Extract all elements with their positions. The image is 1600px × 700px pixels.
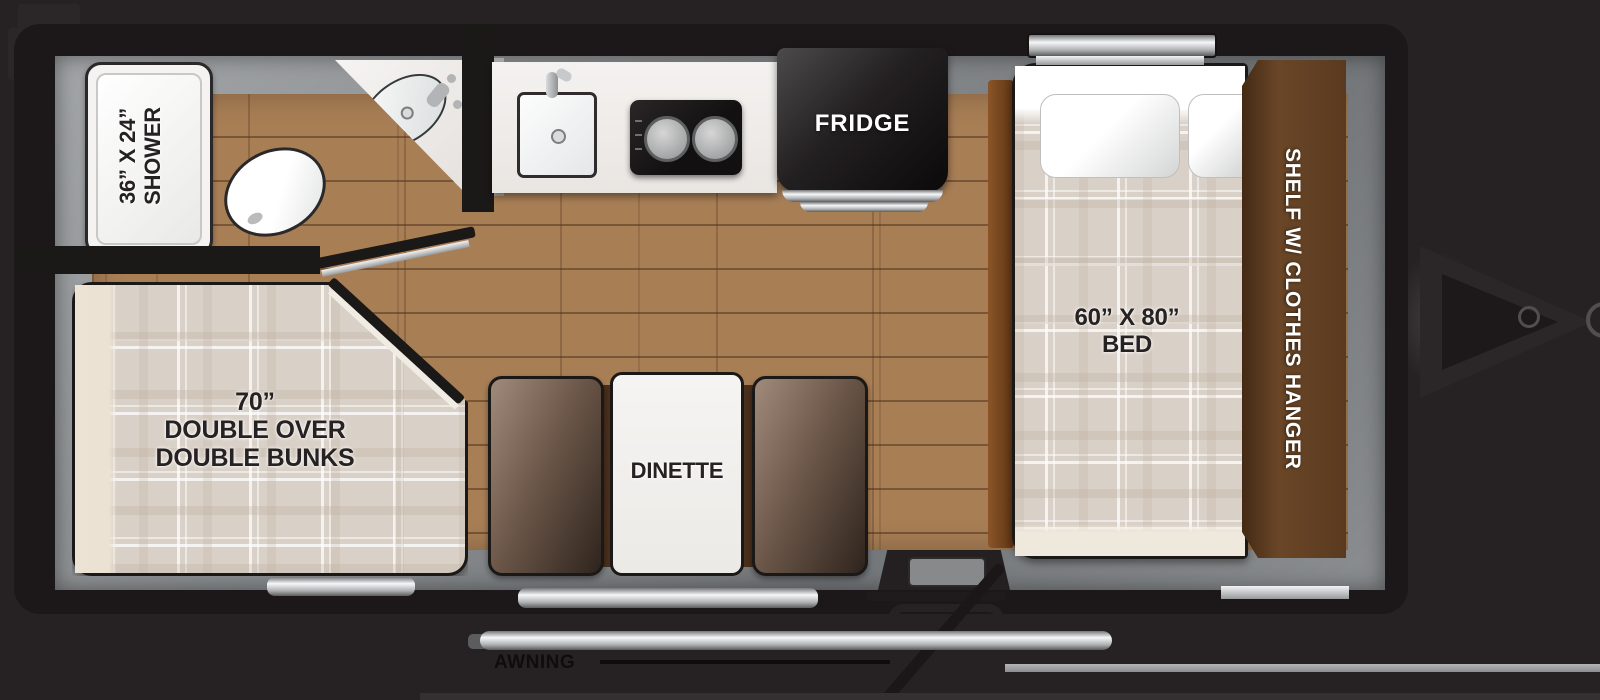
window-sill [1036,56,1204,65]
toilet-drain-icon [246,210,265,226]
shower-label: 36” X 24” SHOWER [116,66,176,246]
awning-extent-line [600,660,890,664]
awning-label: AWNING [494,652,575,674]
shower-size-text: 36” X 24” [116,66,141,246]
window [1221,586,1349,599]
bed-headboard [988,80,1014,548]
coupler-icon [1586,302,1600,338]
dinette-bench-right [752,376,868,576]
shower-text: SHOWER [141,66,166,246]
bed-size-text: 60” X 80” [1032,305,1222,332]
stove [630,100,742,175]
shelf-clothes-hanger: SHELF W/ CLOTHES HANGER [1242,60,1346,558]
burner-icon [692,116,738,162]
faucet-handle-icon [453,100,462,109]
fridge: FRIDGE [777,48,948,192]
window [1027,33,1217,58]
stove-knob-icon [635,120,642,122]
awning-bar [480,631,1112,650]
entry-door-panel [908,557,986,587]
bunk-size-text: 70” [115,388,395,416]
bed-label: 60” X 80” BED [1032,305,1222,359]
bunk-text: DOUBLE OVER [115,416,395,444]
fridge-vent-trim [782,190,943,202]
burner-icon [644,116,690,162]
wall-bath-kitchen [462,24,494,212]
window [267,577,415,596]
wall-bath-bunk [14,246,320,274]
bunk-label: 70” DOUBLE OVER DOUBLE BUNKS [115,388,395,472]
fridge-label: FRIDGE [777,110,948,138]
safety-chain-ring-icon [1518,306,1540,328]
bed-sheet-foot [1015,524,1245,556]
bunk-sheet-edge [75,285,117,573]
bunk-text: DOUBLE BUNKS [115,444,395,472]
kitchen-sink-icon [517,92,597,178]
dinette-table: DINETTE [610,372,744,576]
pillow [1040,94,1180,178]
shelf-label: SHELF W/ CLOTHES HANGER [1280,60,1304,558]
floorplan-canvas: 36” X 24” SHOWER FRIDGE [0,0,1600,700]
bottom-shadow-band [420,693,1600,700]
bed-text: BED [1032,332,1222,359]
stove-knob-icon [635,148,642,150]
window [518,588,818,608]
dinette-label: DINETTE [593,459,761,484]
faucet-handle-icon [447,74,456,83]
dinette-bench-left [488,376,604,576]
stove-knob-icon [635,134,642,136]
pillow [1188,94,1244,178]
ground-line [1005,664,1600,672]
fridge-vent-trim [800,202,928,212]
